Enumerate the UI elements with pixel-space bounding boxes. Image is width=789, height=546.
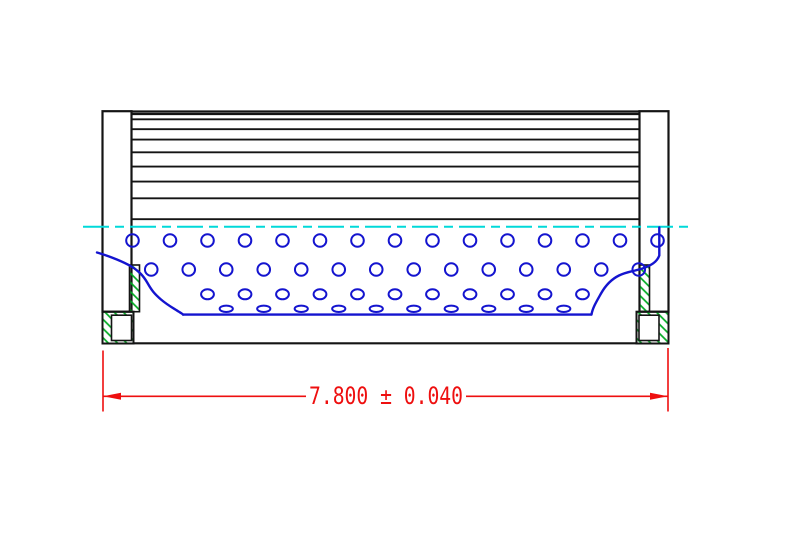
filter-element-section-drawing: 7.800 ± 0.040 (0, 0, 789, 546)
cad-viewport: 7.800 ± 0.040 (0, 0, 789, 546)
perforation-holes (126, 234, 664, 312)
dimension-label: 7.800 ± 0.040 (309, 382, 463, 410)
tear-break-lines (97, 228, 659, 315)
